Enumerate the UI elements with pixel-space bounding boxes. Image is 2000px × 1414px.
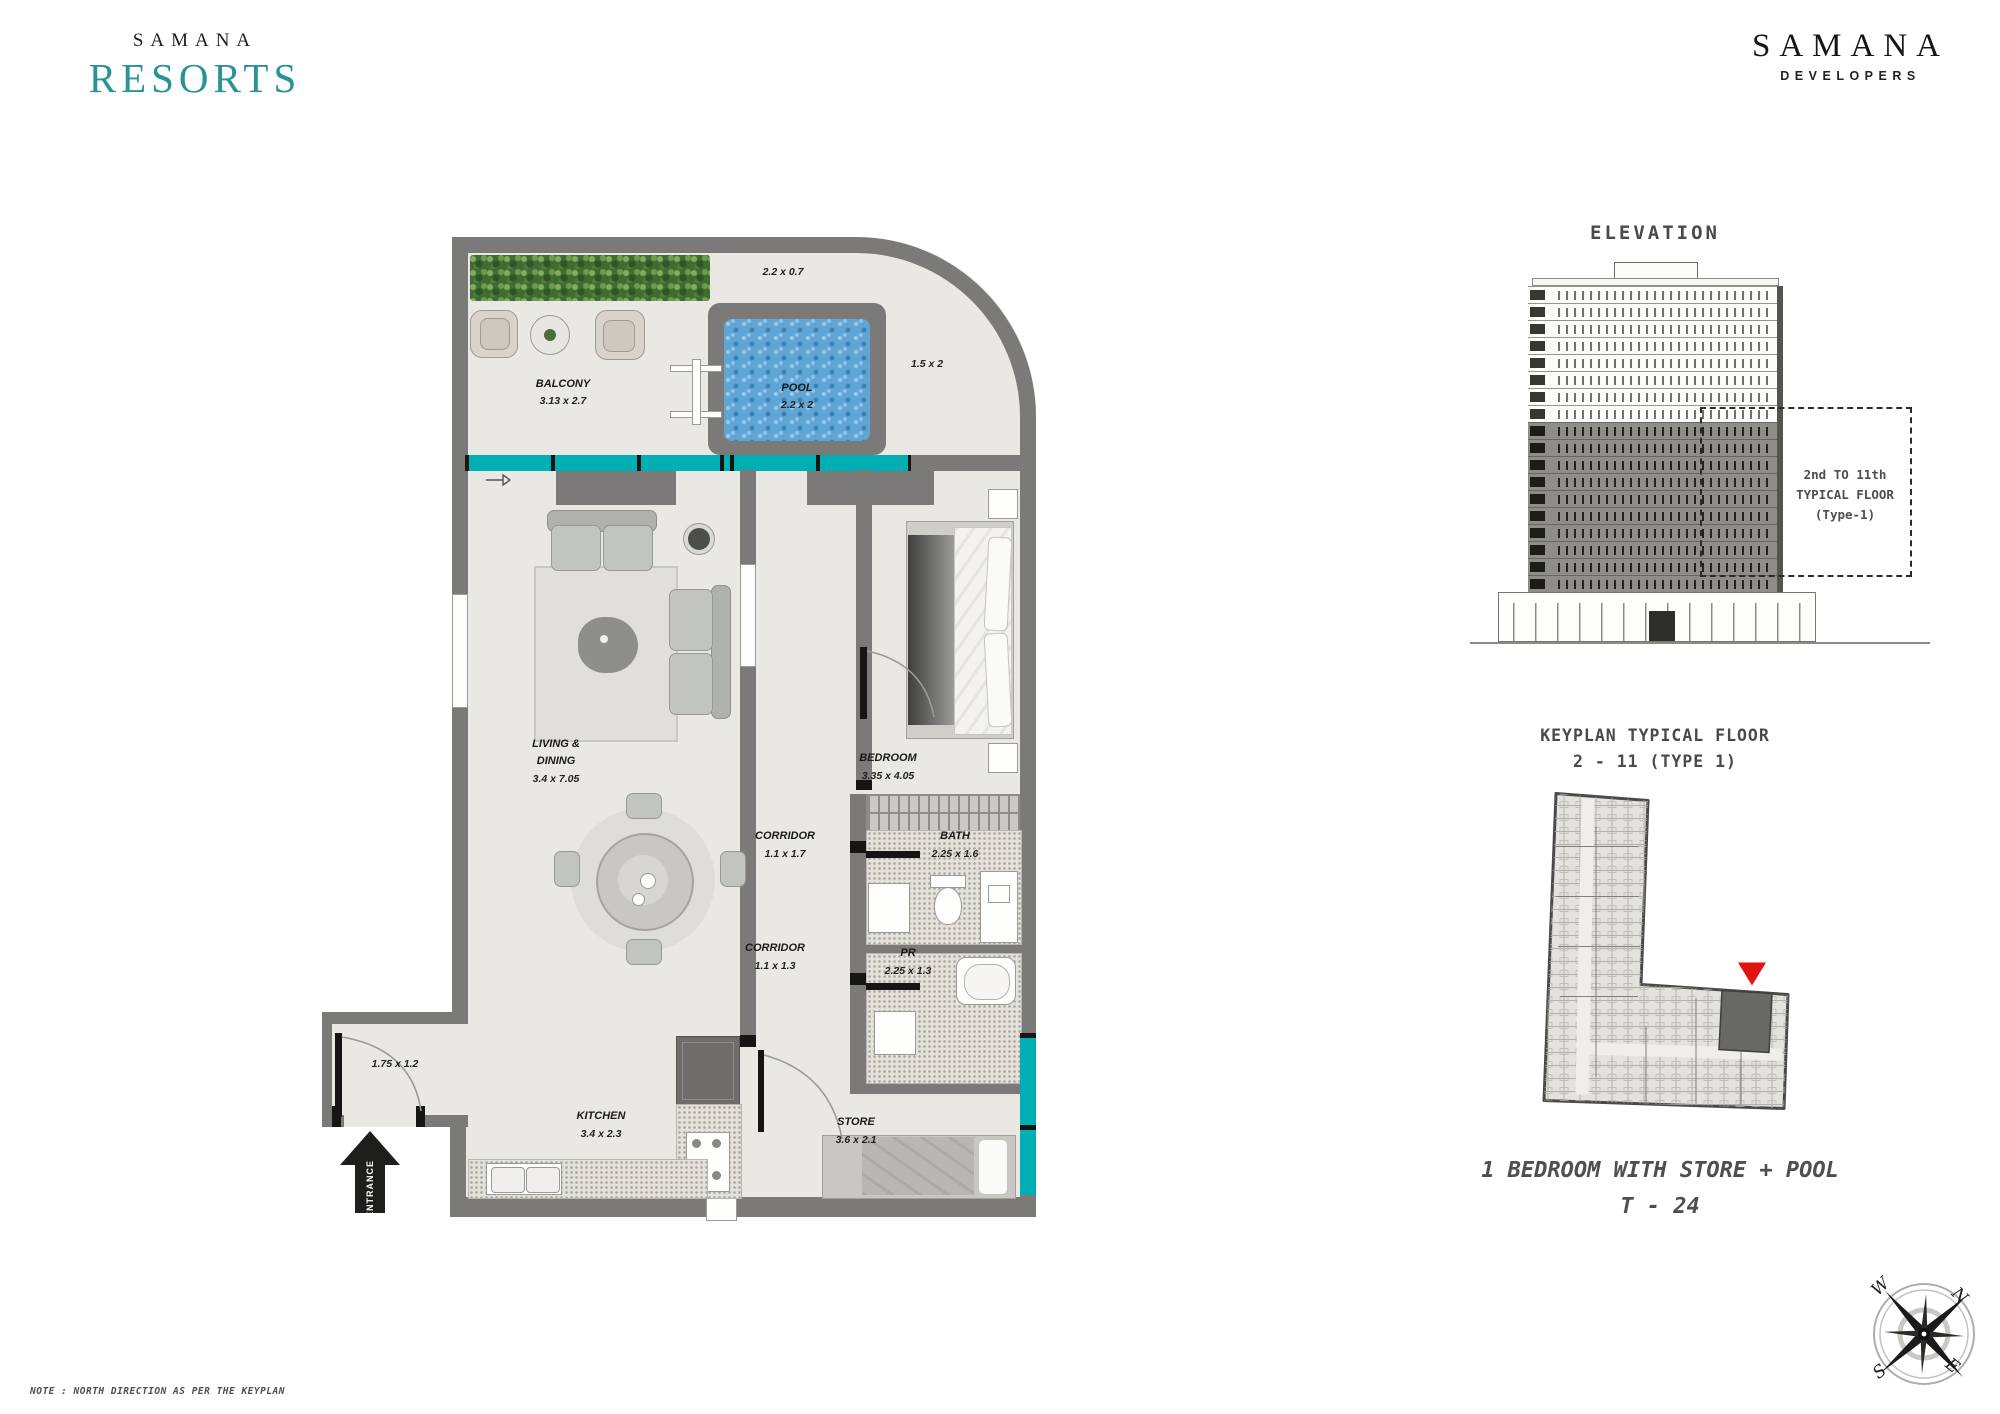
door-leaf xyxy=(335,1033,342,1117)
keyplan-title-1: KEYPLAN TYPICAL FLOOR xyxy=(1460,726,1850,745)
ground-line xyxy=(1470,642,1930,644)
wall xyxy=(737,1197,1036,1217)
toilet xyxy=(934,887,962,925)
unit-type-title: 1 BEDROOM WITH STORE + POOL xyxy=(1420,1158,1900,1183)
store-dims: 3.6 x 2.1 xyxy=(836,1135,877,1146)
logo-sub-text: DEVELOPERS xyxy=(1718,69,1983,83)
burner xyxy=(712,1171,721,1180)
samana-developers-logo: SAMANA DEVELOPERS xyxy=(1718,28,1983,83)
wall-end-cap xyxy=(740,1035,756,1047)
wall-panel xyxy=(740,564,756,667)
floor-row xyxy=(1528,337,1783,354)
bath-dims: 2.25 x 1.6 xyxy=(932,849,979,860)
coffee-table xyxy=(578,617,638,673)
balcony-chair-cushion xyxy=(480,318,510,350)
door-lintel xyxy=(866,851,920,858)
door-jamb xyxy=(850,841,866,853)
bath-sink xyxy=(988,885,1010,903)
sofa-cushion xyxy=(669,589,713,651)
bath-vanity xyxy=(980,871,1018,943)
wall xyxy=(856,470,872,790)
store-window xyxy=(1020,1037,1036,1125)
unit-location-marker xyxy=(1738,963,1766,986)
wardrobe-divider xyxy=(866,812,1020,814)
door-leaf xyxy=(758,1050,764,1132)
door-direction-arrow-icon xyxy=(485,473,511,487)
pillow xyxy=(984,536,1013,631)
floor-row xyxy=(1528,320,1783,337)
window-mullion xyxy=(720,455,724,471)
window-mullion xyxy=(1020,1033,1036,1038)
wall xyxy=(418,1115,468,1127)
sink-basin xyxy=(526,1167,560,1193)
table-plant xyxy=(544,329,556,341)
window-mullion xyxy=(551,455,555,471)
refrigerator-door xyxy=(682,1042,734,1100)
floor-row xyxy=(1528,371,1783,388)
north-direction-note: NOTE : NORTH DIRECTION AS PER THE KEYPLA… xyxy=(30,1386,285,1397)
plate xyxy=(632,893,645,906)
samana-resorts-logo: SAMANA RESORTS xyxy=(60,30,330,102)
typical-floor-annotation-box: 2nd TO 11th TYPICAL FLOOR (Type-1) xyxy=(1700,407,1912,577)
typical-floor-annotation: 2nd TO 11th TYPICAL FLOOR (Type-1) xyxy=(1782,465,1908,525)
balcony-chair-cushion xyxy=(603,320,635,352)
logo-brand-text: SAMANA xyxy=(60,30,330,52)
burner xyxy=(692,1139,701,1148)
corridor2-dims: 1.1 x 1.3 xyxy=(755,961,796,972)
nightstand xyxy=(988,743,1018,773)
arrow-shaft: ENTRANCE xyxy=(355,1164,385,1213)
bathtub-basin xyxy=(964,964,1010,1000)
wall xyxy=(450,1197,706,1217)
living-label-2: DINING xyxy=(537,756,576,767)
window-glazing-strip xyxy=(468,455,911,471)
pool-dims: 2.2 x 2 xyxy=(781,400,813,411)
annotation-line: (Type-1) xyxy=(1782,505,1908,525)
logo-project-text: RESORTS xyxy=(60,54,330,102)
bedroom-label: BEDROOM xyxy=(859,753,916,764)
entrance-arrow-icon: ENTRANCE xyxy=(340,1131,400,1213)
sink-basin xyxy=(491,1167,525,1193)
wall xyxy=(322,1012,468,1024)
dining-chair xyxy=(626,939,662,965)
sofa-cushion xyxy=(551,525,601,571)
door-jamb xyxy=(332,1106,341,1127)
store-window xyxy=(1020,1129,1036,1195)
floor-plan: ENTRANCE 2.2 x 0.7 POOL 2.2 x 2 1.5 x 2 … xyxy=(322,237,1036,1243)
bed-runner xyxy=(908,535,954,725)
sofa-cushion xyxy=(669,653,713,715)
burner xyxy=(712,1139,721,1148)
floor-row xyxy=(1528,303,1783,320)
logo-brand-text: SAMANA xyxy=(1718,28,1983,65)
pr-label: PR xyxy=(900,948,915,959)
window-mullion xyxy=(730,455,734,471)
pool xyxy=(724,319,870,441)
corridor1-label: CORRIDOR xyxy=(755,831,815,842)
annotation-line: 2nd TO 11th xyxy=(1782,465,1908,485)
window xyxy=(452,594,468,708)
pool-label: POOL xyxy=(781,383,812,394)
dining-chair xyxy=(554,851,580,887)
pr-dims: 2.25 x 1.3 xyxy=(885,966,932,977)
unit-highlight xyxy=(1719,991,1772,1053)
pool-deck-dims: 2.2 x 0.7 xyxy=(763,267,804,278)
door-leaf xyxy=(860,647,867,719)
keyplan-title-2: 2 - 11 (TYPE 1) xyxy=(1460,752,1850,771)
window-mullion xyxy=(816,455,820,471)
floor-row xyxy=(1528,388,1783,405)
washbasin-cabinet xyxy=(868,883,910,933)
podium-entrance xyxy=(1649,611,1675,641)
keyplan-drawing xyxy=(1526,784,1796,1124)
balcony-dims: 3.13 x 2.7 xyxy=(540,396,587,407)
plate xyxy=(640,873,656,889)
bedroom-dims: 3.35 x 4.05 xyxy=(862,771,915,782)
floor-row xyxy=(1528,354,1783,371)
store-label: STORE xyxy=(837,1117,875,1128)
wall xyxy=(556,471,676,505)
store-bed-duvet xyxy=(862,1137,974,1195)
wall xyxy=(322,1012,332,1127)
window-mullion xyxy=(1020,1125,1036,1130)
podium xyxy=(1498,592,1816,642)
window-mullion xyxy=(637,455,641,471)
door-lintel xyxy=(866,983,920,990)
kitchen-dims: 3.4 x 2.3 xyxy=(581,1129,622,1140)
parapet xyxy=(1532,278,1779,286)
floor-row xyxy=(1528,286,1783,303)
sofa xyxy=(711,585,731,719)
window-mullion xyxy=(465,455,469,471)
annotation-line: TYPICAL FLOOR xyxy=(1782,485,1908,505)
plant xyxy=(688,528,710,550)
curved-corner-wall xyxy=(322,237,1036,437)
side-deck-dims: 1.5 x 2 xyxy=(911,359,943,370)
floor-row-highlight xyxy=(1528,575,1783,592)
balcony-label: BALCONY xyxy=(536,379,590,390)
wall xyxy=(911,455,1020,471)
corridor2-label: CORRIDOR xyxy=(745,943,805,954)
brochure-page: SAMANA RESORTS SAMANA DEVELOPERS xyxy=(0,0,2000,1414)
sofa-cushion xyxy=(603,525,653,571)
kitchen-label: KITCHEN xyxy=(577,1111,626,1122)
door-jamb xyxy=(416,1106,425,1127)
dining-chair xyxy=(626,793,662,819)
corridor1-dims: 1.1 x 1.7 xyxy=(765,849,806,860)
pool-ladder xyxy=(692,359,701,425)
living-dims: 3.4 x 7.05 xyxy=(533,774,580,785)
pillow xyxy=(978,1139,1008,1195)
elevation-title: ELEVATION xyxy=(1505,222,1805,244)
bath-label: BATH xyxy=(940,831,970,842)
pillow xyxy=(984,632,1013,727)
unit-number: T - 24 xyxy=(1420,1194,1900,1219)
dining-chair xyxy=(720,851,746,887)
pr-sink xyxy=(874,1011,916,1055)
door-jamb xyxy=(850,973,866,985)
coffee-table-decor xyxy=(600,635,608,643)
wall xyxy=(450,1127,466,1197)
living-label-1: LIVING & xyxy=(532,739,580,750)
entry-dims: 1.75 x 1.2 xyxy=(372,1059,419,1070)
nightstand xyxy=(988,489,1018,519)
entrance-label: ENTRANCE xyxy=(365,1160,375,1218)
